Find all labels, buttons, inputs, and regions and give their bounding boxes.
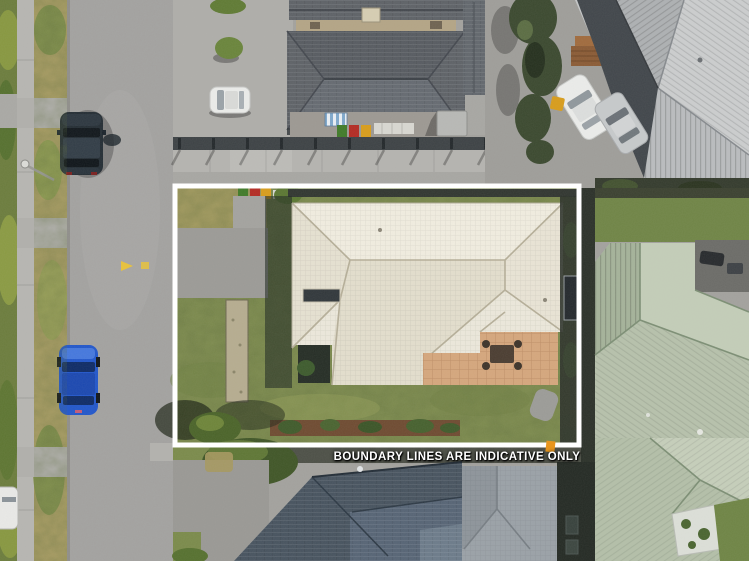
aerial-scene [0,0,749,561]
boundary-disclaimer-text: BOUNDARY LINES ARE INDICATIVE ONLY [334,451,581,463]
photo-grain [0,0,749,561]
aerial-property-photo: BOUNDARY LINES ARE INDICATIVE ONLY [0,0,749,561]
